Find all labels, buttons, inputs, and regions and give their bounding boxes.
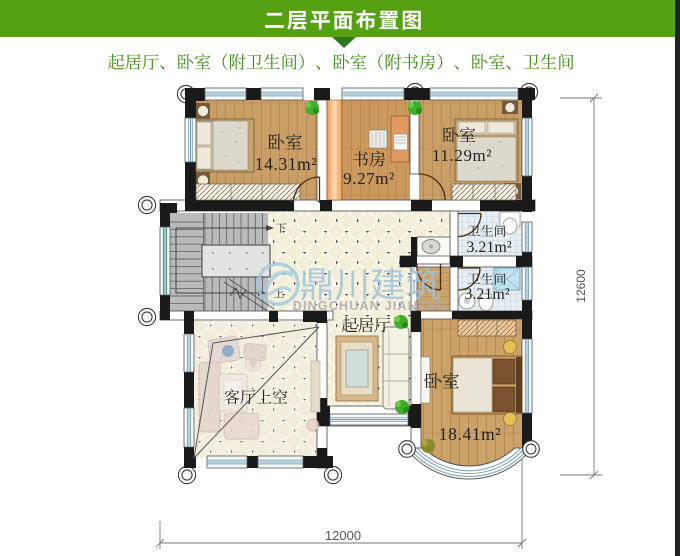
svg-text:9.27m²: 9.27m² bbox=[343, 169, 395, 188]
svg-text:3.21m²: 3.21m² bbox=[464, 286, 509, 303]
svg-text:12600: 12600 bbox=[574, 269, 588, 303]
svg-text:12000: 12000 bbox=[325, 528, 361, 543]
svg-text:14.31m²: 14.31m² bbox=[255, 154, 317, 174]
svg-text:3.21m²: 3.21m² bbox=[466, 239, 511, 256]
svg-text:DINGCHUAN JIANZHU: DINGCHUAN JIANZHU bbox=[293, 299, 447, 313]
svg-text:18.41m²: 18.41m² bbox=[439, 424, 501, 444]
svg-text:11.29m²: 11.29m² bbox=[432, 146, 492, 165]
